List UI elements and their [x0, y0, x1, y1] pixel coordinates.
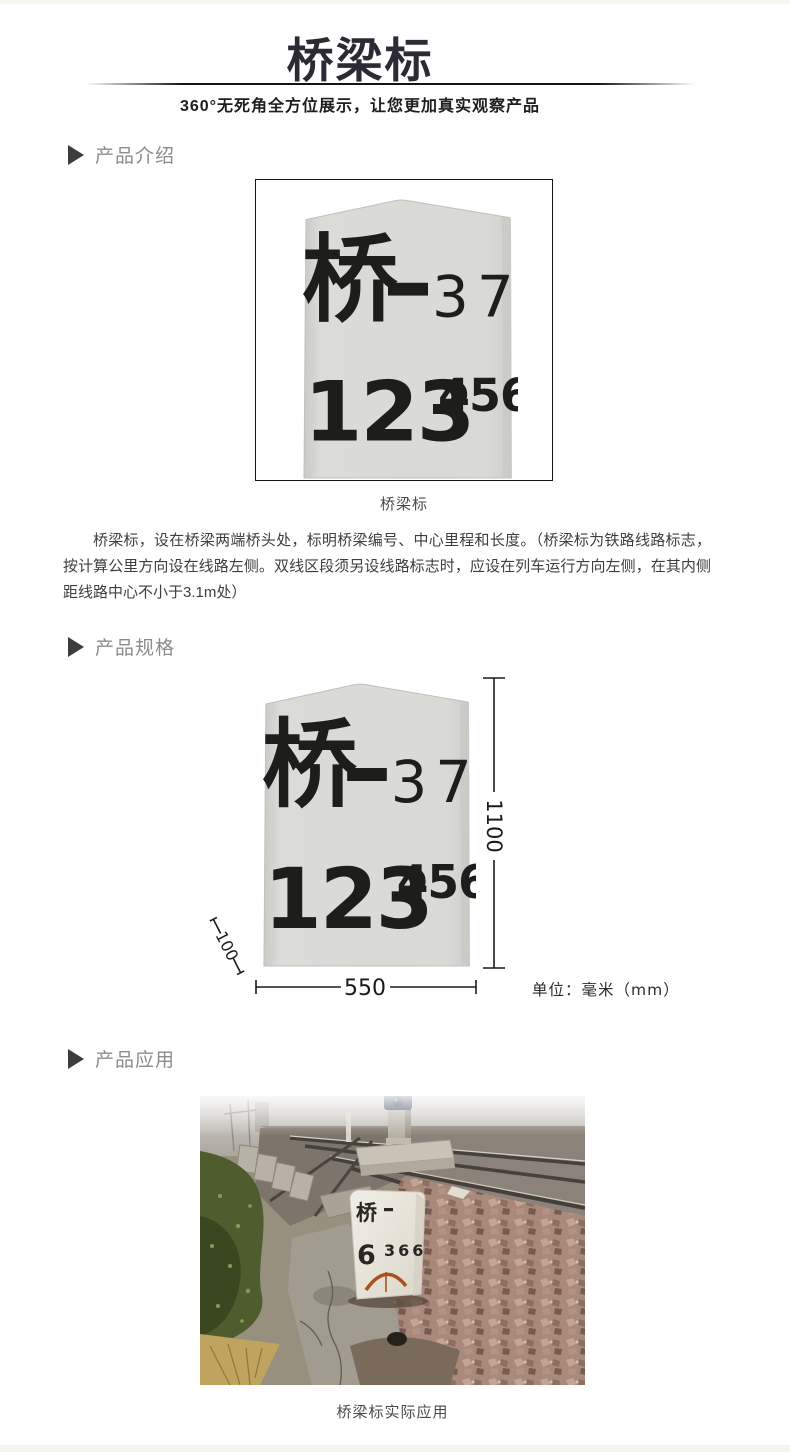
section-label: 产品规格: [95, 633, 175, 660]
title-divider: [85, 83, 695, 85]
bridge-marker-illustration: 桥 37 123 456: [296, 194, 518, 480]
product-page: 桥梁标 360°无死角全方位展示，让您更加真实观察产品 产品介绍 桥 37 12…: [0, 0, 790, 1452]
dimension-annotations: 1100 550 100 单位：毫米（mm）: [200, 670, 680, 1015]
spec-diagram: 桥 37 123 456 1100 550: [200, 670, 680, 1015]
stone-side-face: [502, 217, 512, 478]
stone-number-super: 456: [438, 369, 518, 422]
arrow-icon: [68, 145, 84, 165]
section-label: 产品介绍: [95, 141, 175, 168]
height-dimension-label: 1100: [482, 799, 506, 852]
fog-overlay: [200, 1096, 585, 1136]
photo-dash-stroke: [384, 1208, 393, 1211]
arrow-icon: [68, 637, 84, 657]
section-label: 产品应用: [95, 1045, 175, 1072]
stone-char: 桥: [302, 226, 399, 335]
railway-scene: 桥 6 366: [200, 1096, 585, 1385]
product-description: 桥梁标，设在桥梁两端桥头处，标明桥梁编号、中心里程和长度。（桥梁标为铁路线路标志…: [63, 528, 711, 606]
intro-image-frame: 桥 37 123 456: [255, 179, 553, 481]
width-dimension-label: 550: [344, 976, 386, 1001]
photo-stone-char: 桥: [356, 1201, 378, 1225]
page-title: 桥梁标: [0, 22, 720, 91]
photo-marker-stone: 桥 6 366: [350, 1190, 426, 1299]
page-subtitle: 360°无死角全方位展示，让您更加真实观察产品: [0, 92, 720, 116]
bottom-edge-strip: [0, 1445, 790, 1452]
intro-caption: 桥梁标: [255, 493, 553, 514]
top-edge-strip: [0, 0, 790, 4]
photo-stone-number-left: 6: [357, 1240, 376, 1271]
depth-dimension-line: 100: [205, 915, 249, 977]
dash-stroke: [388, 283, 428, 296]
dark-debris: [387, 1332, 407, 1346]
unit-label: 单位：毫米（mm）: [532, 980, 680, 999]
section-header-specs: 产品规格: [68, 633, 175, 660]
stone-number-small: 37: [432, 264, 518, 331]
arrow-icon: [68, 1049, 84, 1069]
section-header-intro: 产品介绍: [68, 141, 175, 168]
application-photo: 桥 6 366: [200, 1096, 585, 1385]
application-caption: 桥梁标实际应用: [200, 1401, 585, 1422]
depth-dimension-label: 100: [212, 928, 243, 964]
photo-stone-number-right: 366: [384, 1241, 426, 1260]
section-header-application: 产品应用: [68, 1045, 175, 1072]
